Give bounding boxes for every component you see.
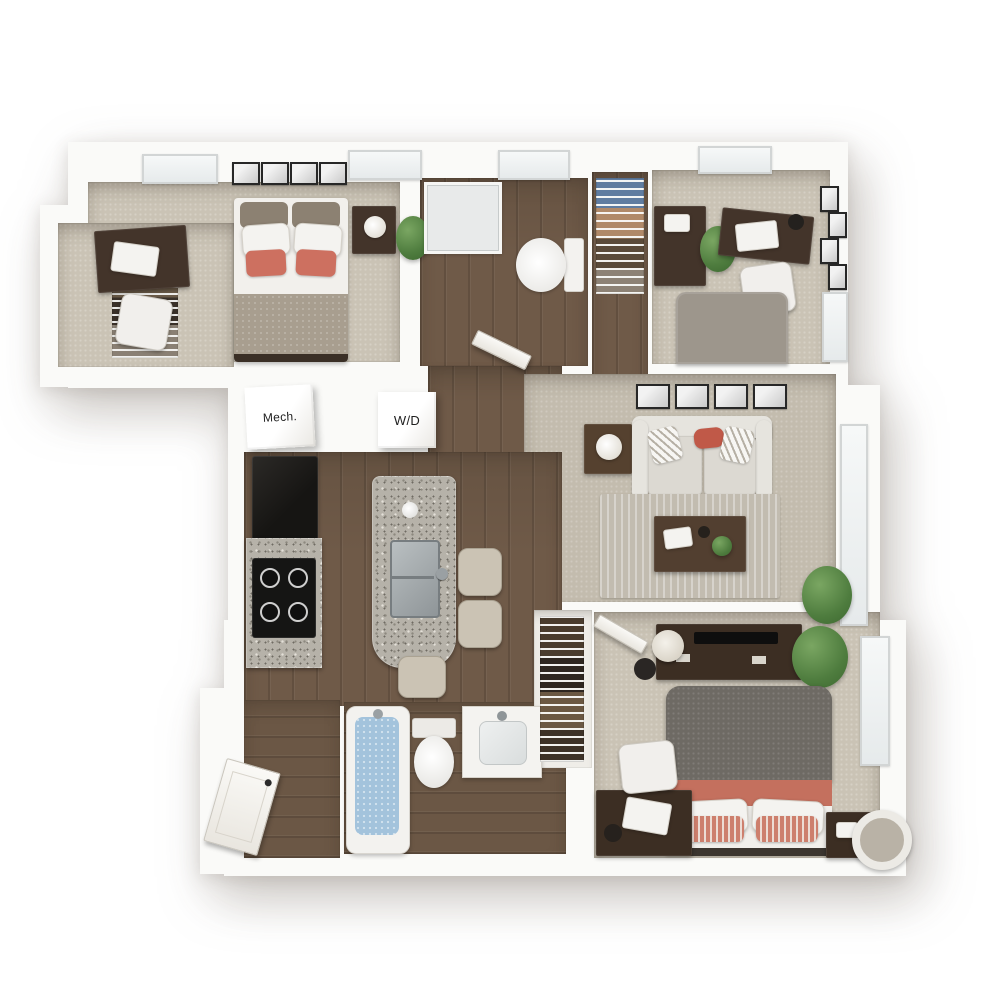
toilet-bowl	[414, 736, 454, 788]
sink-basin	[479, 721, 527, 765]
bathtub-faucet	[373, 709, 383, 719]
bed-striped-coral-pillow	[756, 816, 818, 842]
sofa-arm	[756, 420, 772, 500]
bedroom2-window-top	[698, 146, 772, 174]
coffee-table-books	[663, 526, 694, 550]
bathtub	[346, 706, 410, 854]
bedroom1-table-lamp	[364, 216, 386, 238]
living-art-frame	[753, 384, 787, 409]
coffee-table-bowl	[698, 526, 710, 538]
bar-stool	[458, 600, 502, 648]
bedroom3-office-chair	[618, 739, 679, 795]
bed-duvet-charcoal	[666, 686, 832, 782]
burner	[260, 568, 280, 588]
bedroom3-window	[860, 636, 890, 766]
bed-blanket	[234, 294, 348, 356]
bar-stool	[458, 548, 502, 596]
bar-stool	[398, 656, 446, 698]
burner	[260, 602, 280, 622]
bedroom1-window-2	[348, 150, 422, 180]
bed-coral-pillow	[295, 249, 336, 277]
bedroom2-dresser-decor	[664, 214, 690, 232]
bedroom1-office-chair	[114, 292, 174, 352]
bedroom1-art-frame	[290, 162, 318, 185]
toilet-tank	[564, 238, 584, 292]
living-art-frame	[675, 384, 709, 409]
bed-frame-foot	[234, 354, 348, 362]
living-table-lamp	[596, 434, 622, 460]
floor-plan: Mech. W/D	[0, 0, 1000, 1000]
bedroom2-art-frame	[828, 264, 847, 290]
sink-faucet	[497, 711, 507, 721]
bedroom3-drum-lamp	[652, 630, 684, 662]
toilet-bowl	[516, 238, 566, 292]
refrigerator	[252, 456, 318, 540]
range-cooktop	[252, 558, 316, 638]
bedroom1-art-frame	[232, 162, 260, 185]
entry-door-panel	[215, 771, 269, 843]
coffee-table	[654, 516, 746, 572]
washer-dryer-label: W/D	[394, 413, 420, 428]
island-soap-dispenser	[402, 502, 418, 518]
burner	[288, 602, 308, 622]
vanity-sink	[462, 706, 542, 778]
coat-closet-shelving	[596, 178, 644, 294]
bedroom2-window-side	[822, 292, 848, 362]
bedroom1-art-frame	[261, 162, 289, 185]
bedroom2-laptop	[735, 220, 780, 252]
bedroom1-window-1	[142, 154, 218, 184]
toilet-1	[514, 236, 584, 294]
washer-dryer-cube: W/D	[378, 392, 436, 448]
living-plant	[802, 566, 852, 624]
bathroom1-window	[498, 150, 570, 180]
living-art-frame	[714, 384, 748, 409]
burner	[288, 568, 308, 588]
bedroom2-art-frame	[828, 212, 847, 238]
sofa	[632, 416, 772, 500]
island-faucet	[436, 568, 448, 580]
bedroom2-art-frame	[820, 186, 839, 212]
bedroom2-desk-lamp	[788, 214, 804, 230]
toilet-tank	[412, 718, 456, 738]
bedroom1-laptop	[110, 241, 160, 277]
bed-coral-pillow	[245, 249, 286, 277]
bedroom2-bed	[676, 292, 788, 364]
kitchen-island	[372, 476, 456, 668]
bedroom3-closet-shelving	[540, 616, 584, 762]
sofa-coral-pillow	[693, 426, 725, 449]
bedroom1-art-frame	[319, 162, 347, 185]
laundry-hamper	[852, 810, 912, 870]
bathtub-water	[355, 717, 399, 835]
sink-divider	[392, 576, 434, 579]
mech-room-cube: Mech.	[244, 384, 315, 449]
tv	[694, 632, 778, 644]
bedroom3-desk-speaker	[604, 824, 622, 842]
remote	[752, 656, 766, 664]
bedroom1-bed	[234, 198, 348, 362]
sofa-arm	[632, 420, 648, 500]
bedroom2-art-frame	[820, 238, 839, 264]
mech-label: Mech.	[263, 409, 298, 425]
shower	[424, 182, 502, 254]
bedroom3-speaker	[634, 658, 656, 680]
bedroom3-plant	[792, 626, 848, 688]
living-art-frame	[636, 384, 670, 409]
island-sink	[390, 540, 440, 618]
coffee-table-plant	[712, 536, 732, 556]
toilet-2	[410, 718, 458, 798]
